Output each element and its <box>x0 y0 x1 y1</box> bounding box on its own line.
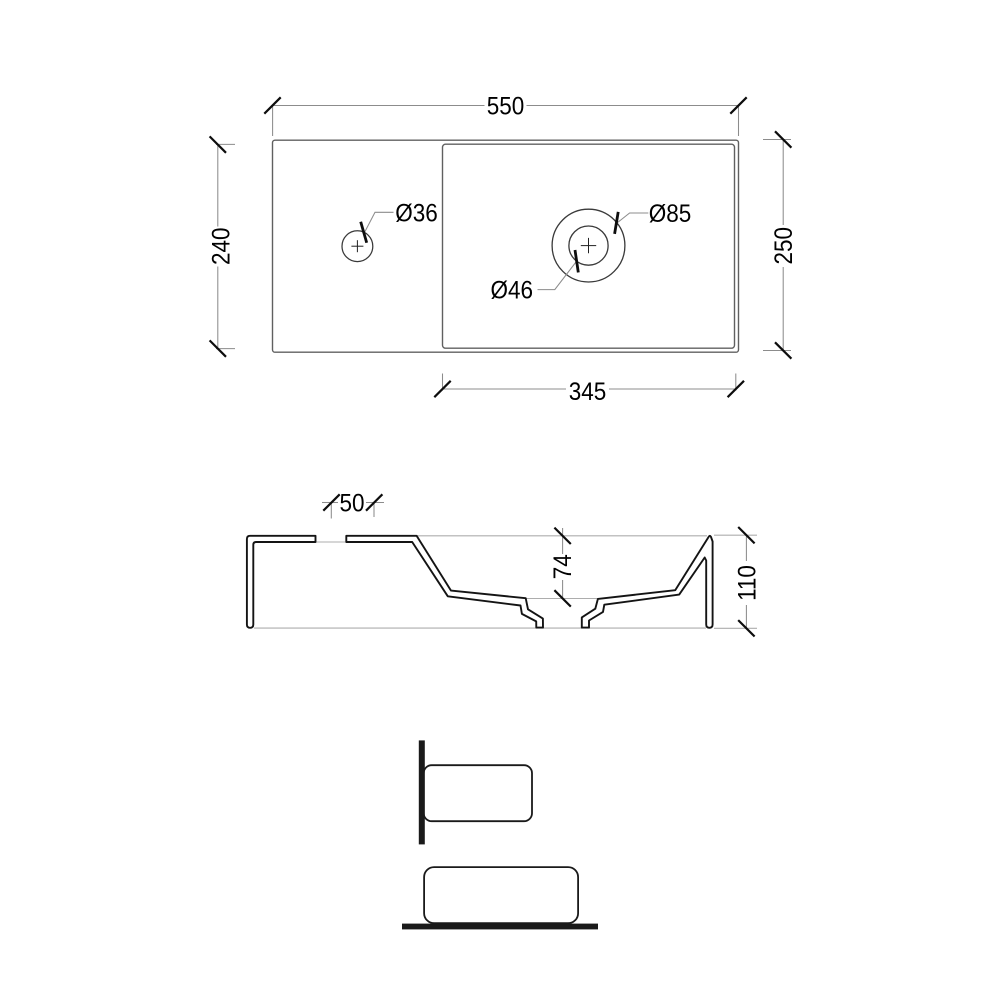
svg-text:74: 74 <box>549 554 577 579</box>
svg-text:550: 550 <box>487 92 525 120</box>
svg-text:Ø36: Ø36 <box>395 199 437 227</box>
svg-text:Ø46: Ø46 <box>491 277 533 305</box>
svg-text:110: 110 <box>734 565 762 601</box>
svg-text:50: 50 <box>339 489 364 517</box>
svg-text:Ø85: Ø85 <box>649 200 691 228</box>
svg-text:240: 240 <box>207 228 235 266</box>
svg-text:250: 250 <box>770 227 798 265</box>
svg-text:345: 345 <box>569 378 607 406</box>
